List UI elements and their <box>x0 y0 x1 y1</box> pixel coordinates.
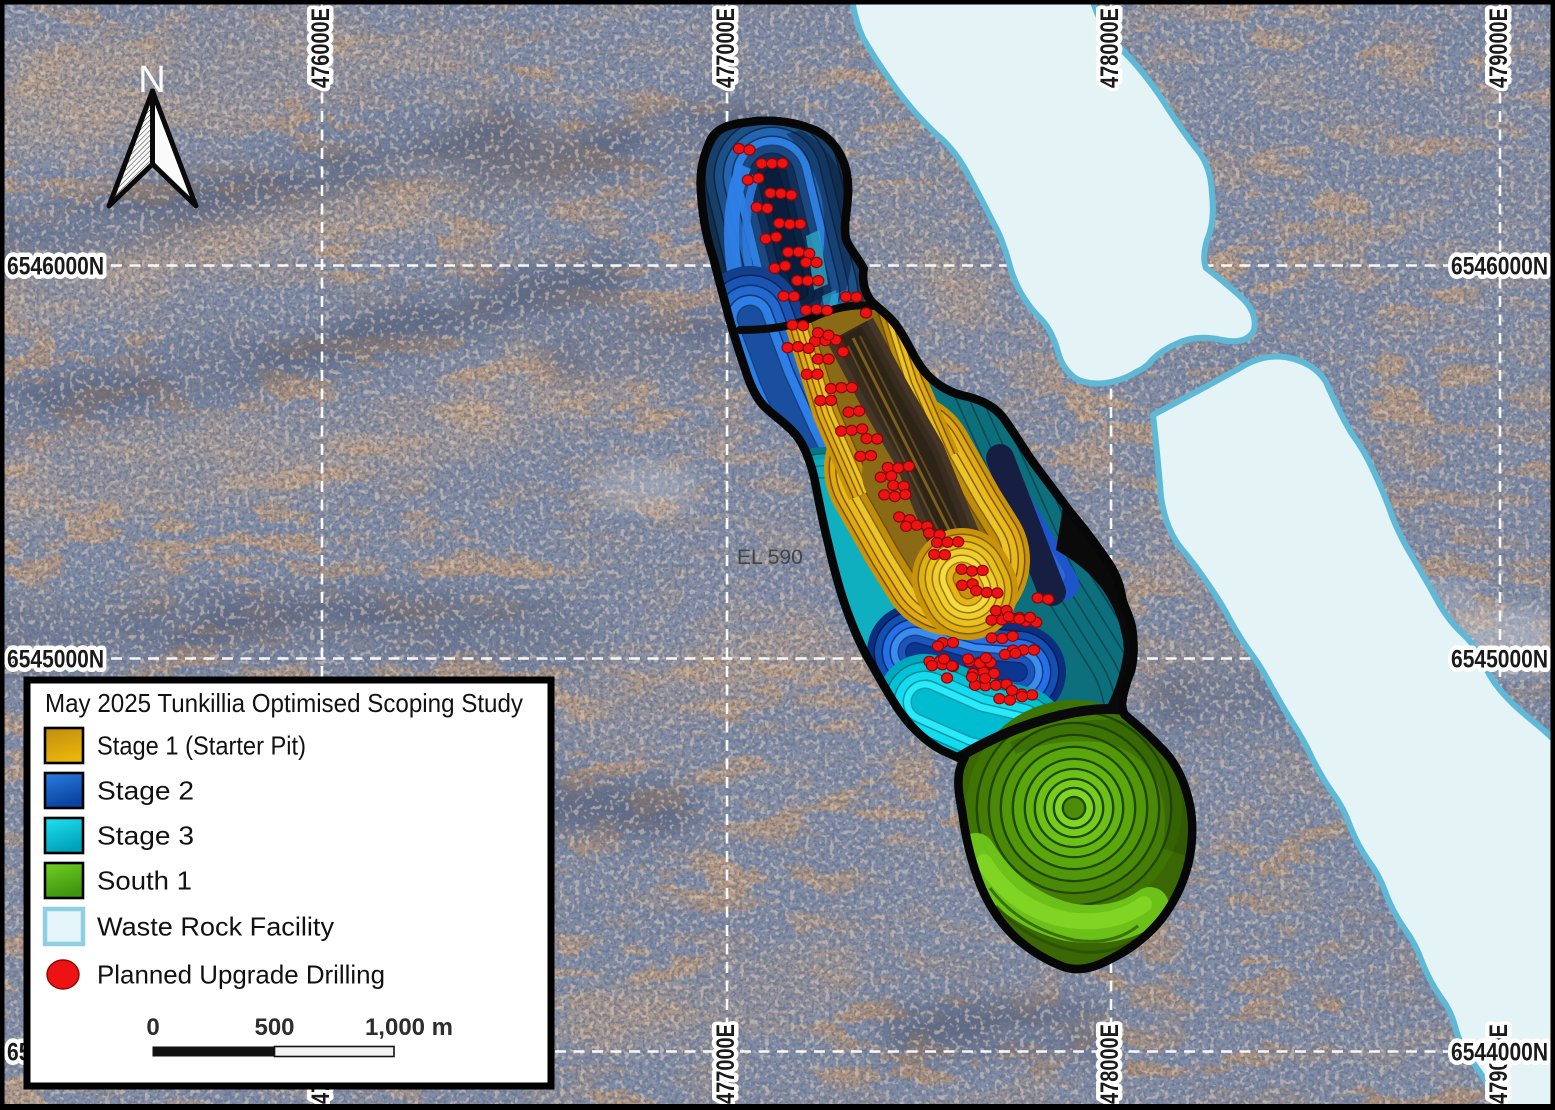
svg-text:500: 500 <box>254 1014 294 1041</box>
svg-text:May 2025 Tunkillia Optimised S: May 2025 Tunkillia Optimised Scoping Stu… <box>45 688 523 718</box>
svg-text:South 1: South 1 <box>97 866 192 896</box>
svg-text:Waste Rock Facility: Waste Rock Facility <box>97 912 334 942</box>
svg-text:479000E: 479000E <box>1485 8 1513 88</box>
svg-text:478000E: 478000E <box>1096 1024 1124 1104</box>
svg-text:EL 590: EL 590 <box>737 546 803 569</box>
svg-text:477000E: 477000E <box>712 8 740 88</box>
svg-text:1,000 m: 1,000 m <box>365 1014 453 1041</box>
svg-text:477000E: 477000E <box>712 1024 740 1104</box>
svg-text:476000E: 476000E <box>307 8 335 88</box>
svg-text:Stage 3: Stage 3 <box>97 821 194 851</box>
svg-text:Stage 1 (Starter Pit): Stage 1 (Starter Pit) <box>97 731 306 761</box>
svg-text:6544000N: 6544000N <box>1451 1039 1548 1067</box>
svg-text:478000E: 478000E <box>1096 8 1124 88</box>
svg-text:0: 0 <box>146 1014 159 1041</box>
svg-text:Stage 2: Stage 2 <box>97 776 194 806</box>
svg-text:Planned Upgrade Drilling: Planned Upgrade Drilling <box>97 960 385 990</box>
svg-text:6545000N: 6545000N <box>1451 646 1548 674</box>
svg-text:6546000N: 6546000N <box>1451 253 1548 281</box>
svg-text:6546000N: 6546000N <box>7 253 104 281</box>
svg-text:6545000N: 6545000N <box>7 646 104 674</box>
